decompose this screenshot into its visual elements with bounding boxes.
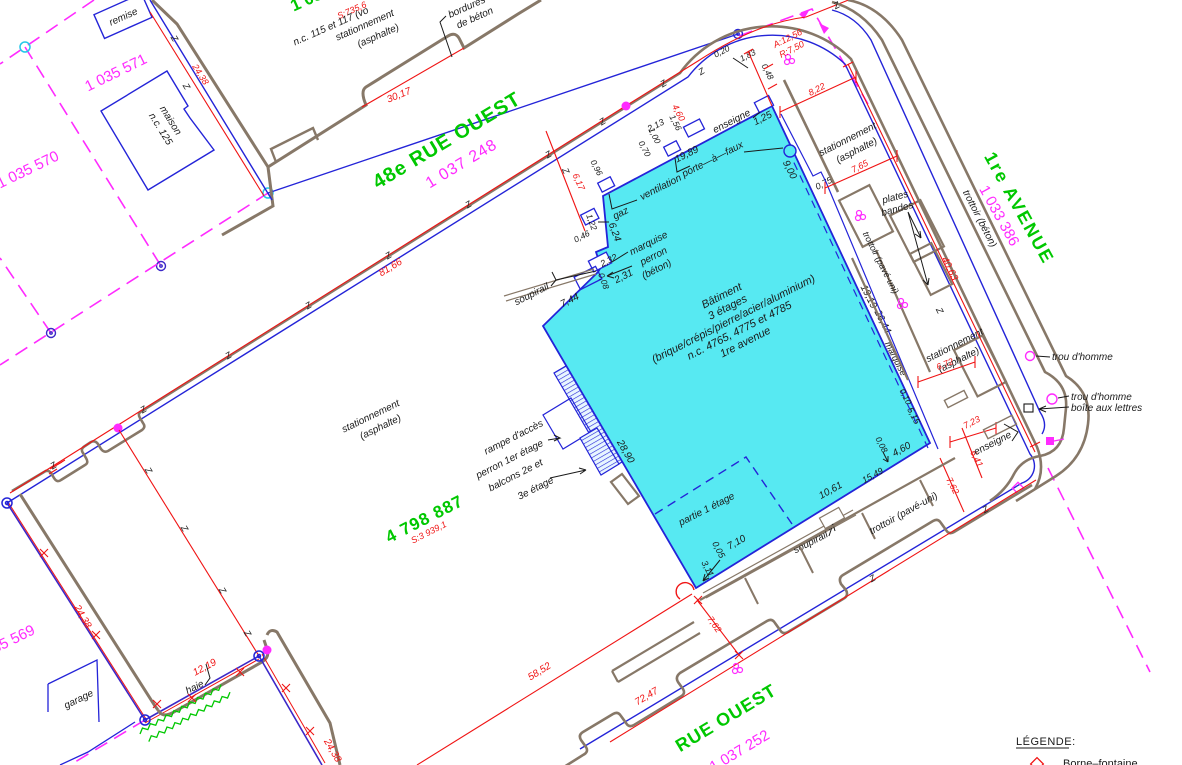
svg-text:Borne–fontaine: Borne–fontaine [1063,758,1138,765]
svg-text:boîte aux lettres: boîte aux lettres [1071,403,1142,414]
svg-text:LÉGENDE:: LÉGENDE: [1016,735,1076,748]
svg-text:trou d'homme: trou d'homme [1071,392,1132,403]
svg-text:trou d'homme: trou d'homme [1052,352,1113,363]
